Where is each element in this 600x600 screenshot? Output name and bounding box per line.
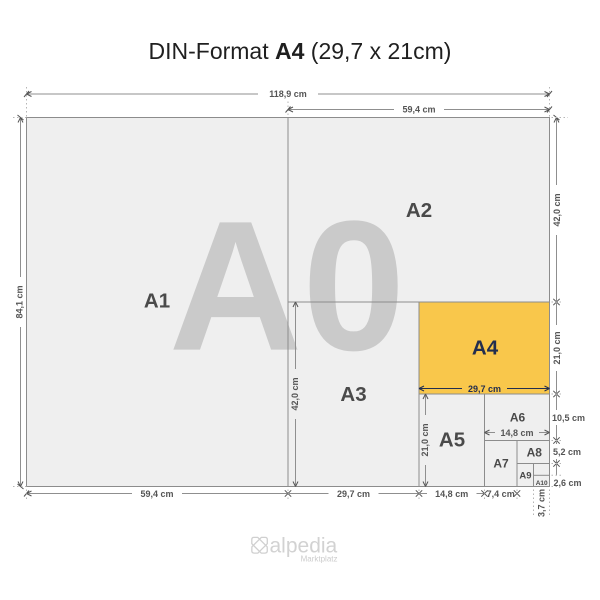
- svg-text:A6: A6: [510, 410, 526, 424]
- svg-text:3,7 cm: 3,7 cm: [536, 489, 546, 517]
- svg-text:84,1 cm: 84,1 cm: [15, 285, 25, 318]
- svg-text:10,5 cm: 10,5 cm: [552, 413, 585, 423]
- svg-text:A8: A8: [527, 446, 543, 460]
- svg-text:A4: A4: [472, 337, 499, 360]
- svg-text:14,8 cm: 14,8 cm: [500, 428, 533, 438]
- svg-text:A0: A0: [169, 184, 406, 390]
- svg-text:A7: A7: [493, 456, 509, 470]
- svg-text:A9: A9: [519, 470, 531, 481]
- svg-text:A3: A3: [340, 383, 366, 406]
- svg-text:A1: A1: [144, 290, 170, 313]
- svg-text:42,0 cm: 42,0 cm: [290, 377, 300, 410]
- svg-text:A2: A2: [406, 199, 432, 222]
- svg-text:14,8 cm: 14,8 cm: [435, 489, 468, 499]
- svg-text:Marktplatz: Marktplatz: [301, 555, 338, 564]
- svg-text:21,0 cm: 21,0 cm: [420, 423, 430, 456]
- svg-text:29,7 cm: 29,7 cm: [468, 384, 501, 394]
- svg-text:7,4 cm: 7,4 cm: [487, 489, 515, 499]
- svg-text:59,4 cm: 59,4 cm: [402, 105, 435, 115]
- svg-text:42,0 cm: 42,0 cm: [552, 193, 562, 226]
- svg-text:118,9 cm: 118,9 cm: [269, 89, 307, 99]
- svg-text:2,6 cm: 2,6 cm: [554, 478, 582, 488]
- svg-text:DIN-Format A4 (29,7 x 21cm): DIN-Format A4 (29,7 x 21cm): [149, 38, 452, 64]
- svg-text:A10: A10: [536, 480, 548, 487]
- svg-text:A5: A5: [439, 428, 465, 451]
- svg-text:21,0 cm: 21,0 cm: [552, 331, 562, 364]
- svg-text:5,2 cm: 5,2 cm: [553, 447, 581, 457]
- svg-text:59,4 cm: 59,4 cm: [140, 489, 173, 499]
- svg-text:29,7 cm: 29,7 cm: [337, 489, 370, 499]
